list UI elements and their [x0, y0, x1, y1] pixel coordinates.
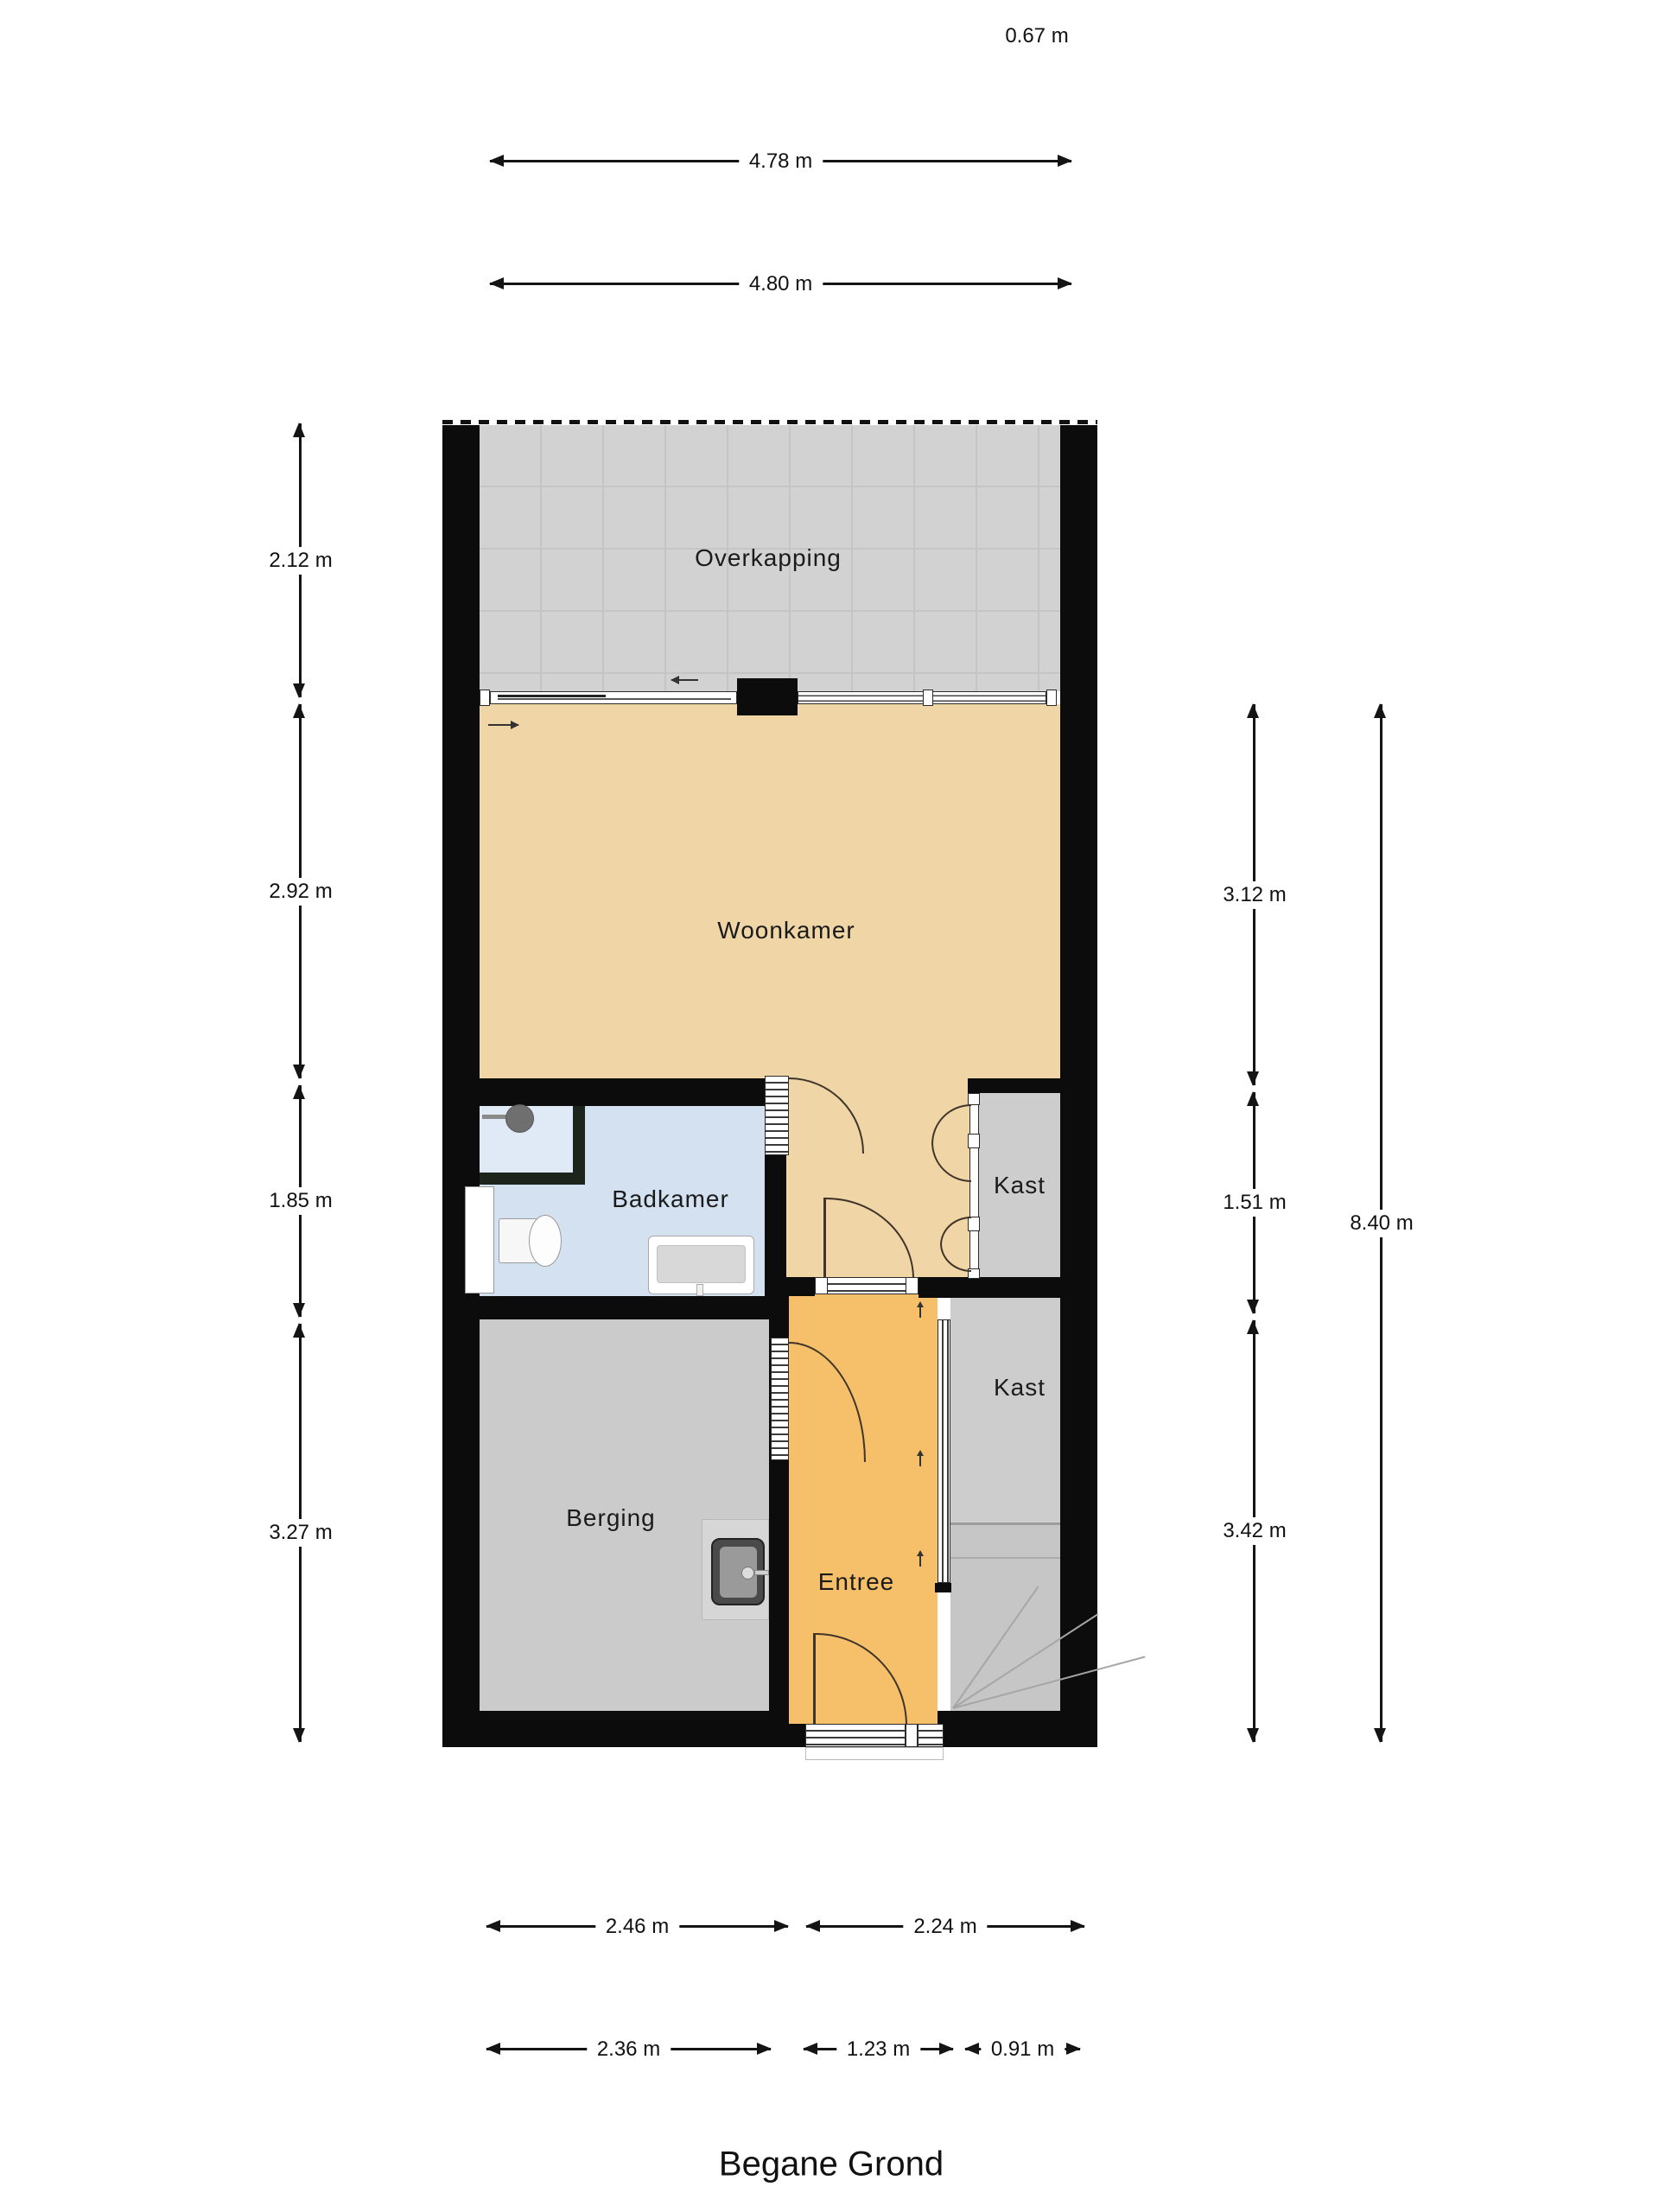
- arrow-right-icon: [757, 2043, 772, 2055]
- bathtub-basin: [657, 1245, 746, 1283]
- dim-right-total: 8.40 m: [1380, 704, 1382, 1742]
- wall-bottom: [442, 1711, 1097, 1747]
- kast-door-post: [968, 1093, 980, 1105]
- arrow-down-icon: [1247, 1300, 1259, 1314]
- facade-post: [737, 678, 798, 715]
- room-kast-onder: [950, 1296, 1060, 1522]
- door-frame-berging: [771, 1338, 789, 1460]
- bathroom-wall-niche: [465, 1186, 494, 1294]
- front-door-sill: [805, 1747, 944, 1760]
- stair-tread-line: [950, 1557, 1060, 1559]
- shower-head-icon: [505, 1104, 534, 1133]
- dim-bottom-row1-1: 2.46 m: [486, 1925, 788, 1928]
- hall-opening: [815, 1277, 918, 1294]
- room-label-kast-boven: Kast: [994, 1172, 1046, 1199]
- arrow-down-icon: [1247, 1728, 1259, 1743]
- arrow-right-icon: [774, 1920, 789, 1932]
- room-label-woonkamer: Woonkamer: [717, 917, 855, 944]
- window: [798, 691, 1046, 704]
- arrow-up-icon: [293, 423, 305, 437]
- arrow-right-icon: [1071, 1920, 1085, 1932]
- arrow-down-icon: [1374, 1728, 1386, 1743]
- dim-top-1: 4.78 m: [490, 160, 1071, 162]
- page-title: Begane Grond: [719, 2145, 944, 2184]
- room-label-kast-onder: Kast: [994, 1374, 1046, 1402]
- dim-bottom-row1-2: 2.24 m: [806, 1925, 1084, 1928]
- wall-left: [442, 425, 480, 1747]
- dim-left-2: 2.92 m: [299, 704, 302, 1078]
- dim-label: 2.36 m: [587, 2037, 671, 2063]
- arrow-up-icon: [293, 703, 305, 718]
- room-label-berging: Berging: [566, 1504, 656, 1532]
- door-frame-badkamer: [765, 1076, 789, 1155]
- wall-right: [1060, 425, 1097, 1747]
- stair-railing: [938, 1319, 950, 1583]
- wall-badkamer-right: [765, 1155, 786, 1296]
- shower-wall: [480, 1173, 585, 1185]
- dim-right-2: 1.51 m: [1253, 1092, 1255, 1313]
- arrow-left-icon: [489, 155, 504, 167]
- dim-top-offset: 0.67 m: [1005, 24, 1068, 48]
- faucet-icon: [741, 1567, 754, 1580]
- dim-right-1: 3.12 m: [1253, 704, 1255, 1085]
- direction-tick-icon: [919, 1455, 921, 1466]
- arrow-left-icon: [964, 2043, 979, 2055]
- wall-kast-top: [968, 1078, 1060, 1093]
- dim-top-2: 4.80 m: [490, 283, 1071, 285]
- arrow-up-icon: [293, 1084, 305, 1099]
- dim-label: 2.92 m: [262, 878, 339, 906]
- arrow-right-icon: [1066, 2043, 1081, 2055]
- front-door: [805, 1724, 906, 1747]
- dim-label: 3.27 m: [262, 1519, 339, 1547]
- wall-hall-seg-right: [918, 1277, 1060, 1298]
- dim-left-3: 1.85 m: [299, 1085, 302, 1317]
- arrow-down-icon: [1247, 1071, 1259, 1086]
- wall-badkamer-bottom: [480, 1296, 789, 1319]
- dim-label: 4.80 m: [739, 271, 823, 297]
- slide-direction-arrow-icon: [671, 679, 698, 681]
- room-label-overkapping: Overkapping: [695, 544, 842, 572]
- arrow-down-icon: [293, 1303, 305, 1318]
- wall-badkamer-top: [480, 1078, 765, 1106]
- arrow-right-icon: [1058, 155, 1072, 167]
- opening-post: [815, 1277, 828, 1294]
- floorplan-page: 0.67 m 4.78 m 4.80 m 2.12 m 2.92 m 1.85 …: [0, 0, 1659, 2212]
- dim-left-1: 2.12 m: [299, 423, 302, 697]
- slide-direction-arrow-icon: [488, 724, 518, 726]
- railing-end-cap: [935, 1583, 951, 1592]
- room-woonkamer: [480, 704, 1060, 1078]
- faucet-arm: [754, 1570, 769, 1575]
- arrow-up-icon: [1247, 703, 1259, 718]
- wall-hall-seg-left: [786, 1277, 815, 1296]
- direction-tick-icon: [919, 1555, 921, 1567]
- arrow-down-icon: [293, 1065, 305, 1079]
- slider-panel: [498, 695, 606, 697]
- arrow-up-icon: [1247, 1091, 1259, 1106]
- dim-bottom-row2-1: 2.36 m: [486, 2048, 771, 2050]
- arrow-left-icon: [486, 1920, 500, 1932]
- dim-left-4: 3.27 m: [299, 1324, 302, 1742]
- window-mullion: [923, 690, 933, 706]
- window-end-cap: [480, 690, 490, 706]
- dim-label: 2.24 m: [903, 1914, 987, 1940]
- dim-label: 0.91 m: [981, 2037, 1065, 2063]
- arrow-up-icon: [1247, 1319, 1259, 1334]
- arrow-left-icon: [803, 2043, 817, 2055]
- arrow-down-icon: [293, 683, 305, 698]
- dim-label: 1.85 m: [262, 1187, 339, 1215]
- room-label-badkamer: Badkamer: [612, 1185, 729, 1213]
- dim-label: 1.23 m: [836, 2037, 920, 2063]
- slider-track: [498, 698, 731, 700]
- arrow-up-icon: [293, 1323, 305, 1338]
- window-end-cap: [1046, 690, 1057, 706]
- sliding-door: [490, 691, 737, 704]
- dim-bottom-row2-3: 0.91 m: [965, 2048, 1080, 2050]
- dim-bottom-row2-2: 1.23 m: [804, 2048, 953, 2050]
- dim-label: 3.42 m: [1216, 1517, 1293, 1545]
- dim-label: 4.78 m: [739, 149, 823, 175]
- dim-label: 1.51 m: [1216, 1189, 1293, 1217]
- arrow-left-icon: [489, 277, 504, 289]
- arrow-right-icon: [1058, 277, 1072, 289]
- bathtub-spout: [696, 1284, 703, 1296]
- arrow-left-icon: [486, 2043, 500, 2055]
- toilet-icon: [529, 1215, 562, 1267]
- door-post: [906, 1724, 918, 1747]
- arrow-down-icon: [293, 1728, 305, 1743]
- canopy-dashed-edge: [442, 420, 1097, 424]
- room-label-entree: Entree: [818, 1568, 895, 1596]
- dim-label: 3.12 m: [1216, 881, 1293, 909]
- stairs-edge-line: [950, 1522, 1060, 1525]
- dim-label: 2.12 m: [262, 547, 339, 575]
- arrow-left-icon: [805, 1920, 820, 1932]
- arrow-up-icon: [1374, 703, 1386, 718]
- dim-label: 2.46 m: [595, 1914, 679, 1940]
- opening-post: [906, 1277, 918, 1294]
- arrow-right-icon: [939, 2043, 954, 2055]
- dim-right-3: 3.42 m: [1253, 1320, 1255, 1742]
- dim-label: 8.40 m: [1343, 1210, 1420, 1237]
- direction-tick-icon: [919, 1306, 921, 1318]
- front-sidelight: [918, 1724, 944, 1747]
